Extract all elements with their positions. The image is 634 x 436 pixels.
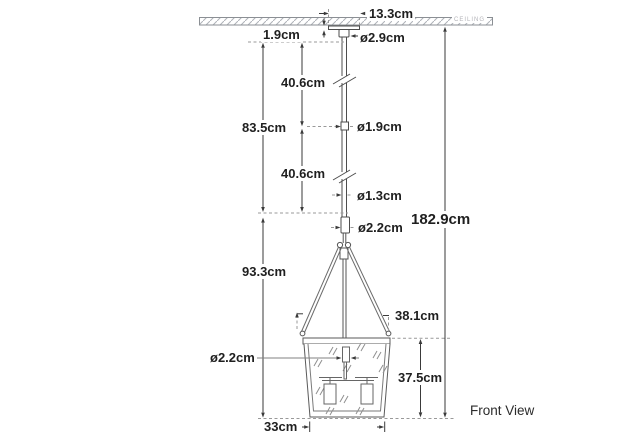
dim-rod-diameter-label: ø1.9cm [355, 119, 404, 134]
dim-shade-bottom-width-label: 33cm [262, 419, 299, 434]
dim-yoke-width-label: 38.1cm [393, 308, 441, 323]
dim-canopy-height-label: 1.9cm [261, 27, 302, 42]
dim-cord-diameter-label: ø1.3cm [355, 188, 404, 203]
dim-shade-height-label: 37.5cm [396, 370, 444, 385]
dim-fixture-drop-label: 93.3cm [240, 264, 288, 279]
ceiling-band [200, 18, 493, 26]
dim-canopy-stem-diameter-label: ø2.9cm [358, 30, 407, 45]
front-view-label: Front View [468, 403, 536, 419]
ceiling-label: CEILING [452, 17, 487, 23]
stem-rod [341, 37, 350, 233]
dim-inner-stem-diameter-label: ø2.2cm [208, 350, 257, 365]
dim-rod-overall-length-label: 83.5cm [240, 120, 288, 135]
fixture-line-drawing [0, 0, 634, 436]
dimension-diagram: CEILING 13.3cm 1.9cm ø2.9cm 40.6cm 83.5c… [0, 0, 634, 436]
dim-canopy-width-label: 13.3cm [367, 6, 415, 21]
hanger-assembly [337, 233, 350, 347]
dim-lower-rod-length-label: 40.6cm [279, 166, 327, 181]
dim-stem-diameter-label: ø2.2cm [356, 220, 405, 235]
dim-upper-rod-length-label: 40.6cm [279, 75, 327, 90]
dim-overall-height-label: 182.9cm [409, 211, 472, 228]
